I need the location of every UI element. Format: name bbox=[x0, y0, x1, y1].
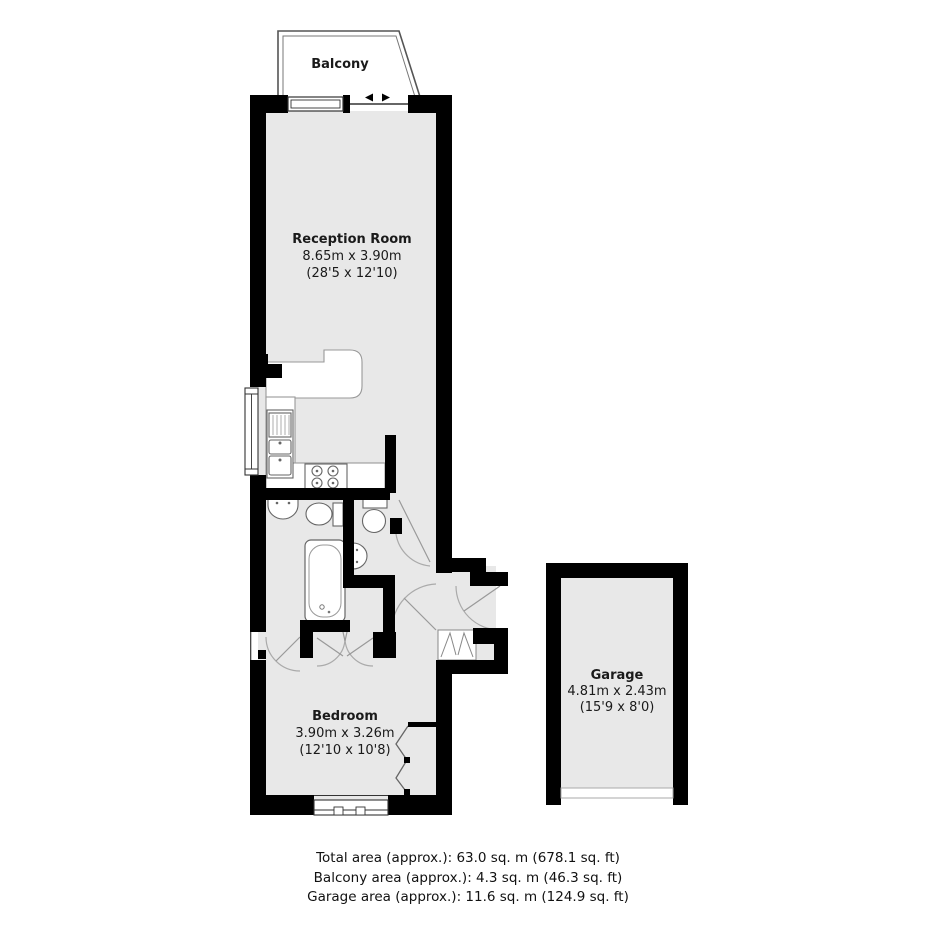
reception-room-size-imperial: (28'5 x 12'10) bbox=[306, 266, 397, 281]
floorplan-page: Balcony Reception Room 8.65m x 3.90m (28… bbox=[0, 0, 940, 940]
bedroom-label: Bedroom bbox=[312, 709, 378, 724]
wall bbox=[473, 628, 508, 644]
total-area-text: Total area (approx.): 63.0 sq. m (678.1 … bbox=[315, 850, 620, 866]
tap-dot bbox=[356, 561, 358, 563]
wall bbox=[250, 660, 266, 815]
wall bbox=[470, 572, 508, 586]
garage-size-imperial: (15'9 x 8'0) bbox=[580, 700, 655, 715]
window-post bbox=[334, 807, 343, 815]
garage-wall bbox=[673, 563, 688, 805]
window bbox=[314, 800, 388, 815]
entry-closet bbox=[438, 630, 476, 660]
garage-door bbox=[561, 788, 673, 798]
balcony-label: Balcony bbox=[311, 57, 369, 72]
wall bbox=[436, 668, 452, 798]
hinge-block bbox=[404, 757, 410, 763]
wall bbox=[436, 660, 494, 674]
garage-wall bbox=[546, 563, 688, 578]
bedroom-size-metric: 3.90m x 3.26m bbox=[295, 726, 394, 741]
kitchen-sink bbox=[267, 410, 293, 478]
balcony-area-text: Balcony area (approx.): 4.3 sq. m (46.3 … bbox=[314, 870, 623, 886]
hinge-block bbox=[404, 789, 410, 795]
window bbox=[288, 97, 343, 111]
tap-dot bbox=[356, 549, 358, 551]
wall bbox=[250, 95, 288, 113]
toilet-cistern bbox=[333, 503, 343, 526]
wall-stub bbox=[258, 650, 266, 659]
wall-stub bbox=[343, 95, 350, 113]
wall bbox=[250, 95, 266, 387]
wall bbox=[494, 644, 508, 674]
garage-wall bbox=[546, 563, 561, 805]
bedroom-size-imperial: (12'10 x 10'8) bbox=[299, 743, 390, 758]
wc-toilet bbox=[363, 510, 386, 533]
tap-dot bbox=[276, 502, 279, 505]
wall bbox=[300, 620, 350, 632]
wall bbox=[250, 795, 314, 815]
wall-stub bbox=[266, 364, 282, 378]
wall bbox=[436, 113, 452, 573]
wall bbox=[250, 475, 266, 632]
window-post bbox=[356, 807, 365, 815]
wall-stub bbox=[390, 518, 402, 534]
wall bbox=[436, 558, 486, 572]
reception-room-label: Reception Room bbox=[292, 232, 411, 247]
closet-box bbox=[438, 630, 476, 660]
wall bbox=[385, 435, 396, 493]
wardrobe-wall-stub bbox=[408, 722, 437, 727]
wall bbox=[266, 488, 390, 500]
wall bbox=[383, 575, 395, 632]
floorplan-drawing: Balcony Reception Room 8.65m x 3.90m (28… bbox=[0, 0, 940, 940]
toilet bbox=[306, 503, 332, 525]
bathtub-tap bbox=[328, 611, 331, 614]
reception-room-size-metric: 8.65m x 3.90m bbox=[302, 249, 401, 264]
wall-stub bbox=[300, 632, 313, 658]
wall-stub bbox=[373, 632, 396, 658]
tap-dot bbox=[288, 502, 291, 505]
garage-size-metric: 4.81m x 2.43m bbox=[567, 684, 666, 699]
garage-area-text: Garage area (approx.): 11.6 sq. m (124.9… bbox=[307, 889, 629, 905]
garage-label: Garage bbox=[591, 668, 644, 683]
wall bbox=[343, 500, 354, 586]
hob bbox=[305, 464, 347, 489]
wall bbox=[408, 95, 452, 113]
